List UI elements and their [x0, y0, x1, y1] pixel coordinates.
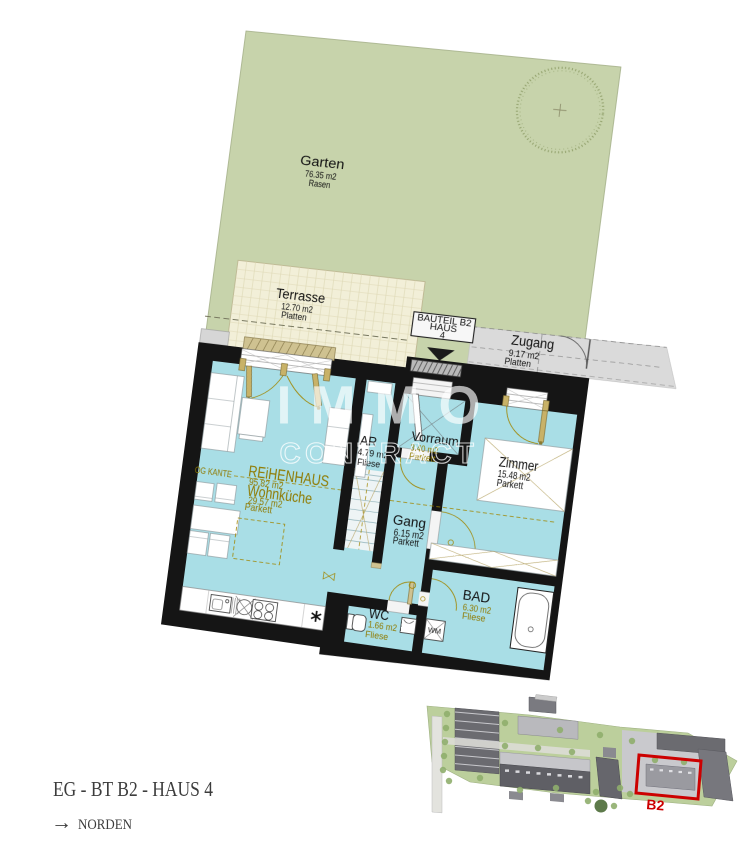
svg-text:B2: B2	[646, 796, 665, 814]
svg-text:NORDEN: NORDEN	[78, 817, 132, 833]
svg-text:EG - BT B2 - HAUS 4: EG - BT B2 - HAUS 4	[53, 777, 213, 801]
svg-text:IMMO: IMMO	[277, 376, 500, 436]
svg-text:CONTRACT: CONTRACT	[280, 438, 479, 470]
svg-text:→: →	[51, 810, 72, 834]
